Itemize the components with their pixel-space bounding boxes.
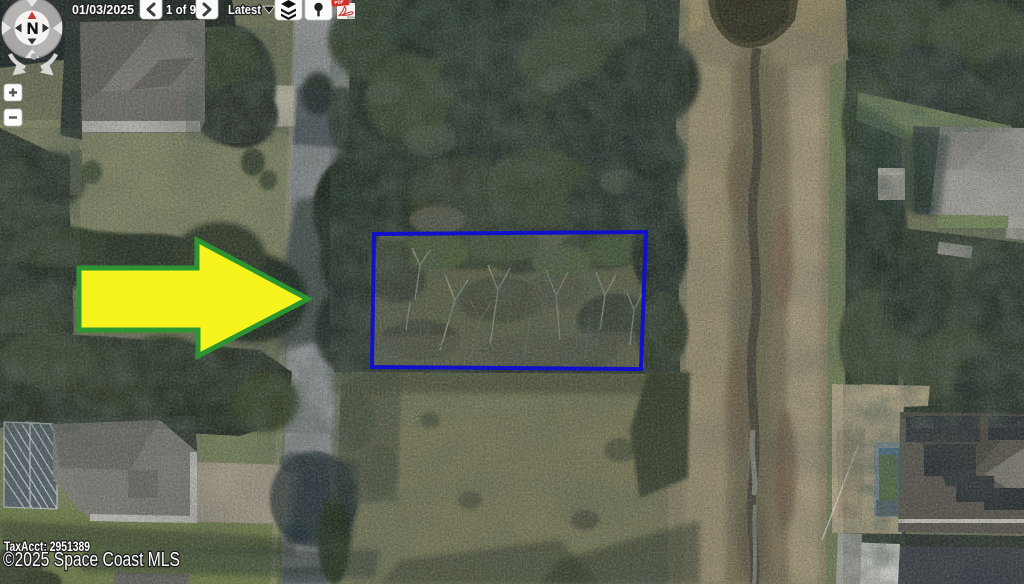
svg-text:1 of 9: 1 of 9 (166, 2, 196, 17)
svg-text:©2025 Space Coast MLS: ©2025 Space Coast MLS (3, 549, 180, 571)
svg-text:01/03/2025: 01/03/2025 (72, 2, 134, 17)
svg-text:Latest: Latest (228, 2, 262, 17)
svg-text:Adobe: Adobe (347, 16, 356, 20)
svg-text:PDF: PDF (334, 0, 344, 5)
